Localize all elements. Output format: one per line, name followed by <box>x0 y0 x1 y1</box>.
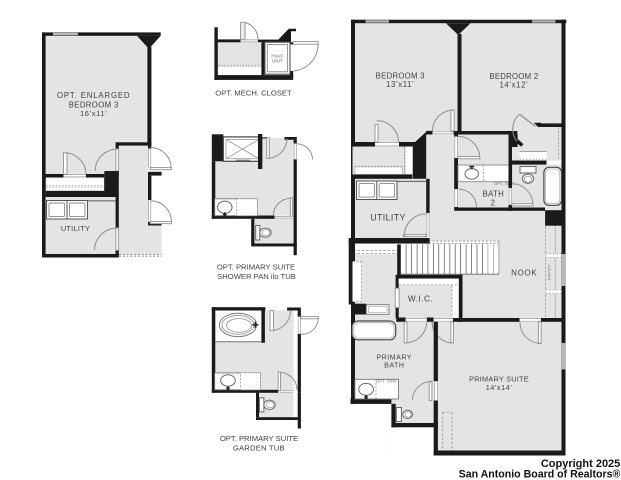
svg-text:BATH: BATH <box>483 190 504 199</box>
svg-text:OPT. ENLARGED: OPT. ENLARGED <box>57 91 130 100</box>
svg-text:PANTRY: PANTRY <box>548 264 552 280</box>
svg-text:OPT. MECH. CLOSET: OPT. MECH. CLOSET <box>215 88 292 97</box>
svg-text:UTILITY: UTILITY <box>61 224 90 233</box>
svg-text:14’x12’: 14’x12’ <box>499 80 528 89</box>
svg-text:W.I.C.: W.I.C. <box>408 295 433 304</box>
svg-text:San Antonio Board of Realtors®: San Antonio Board of Realtors® <box>459 468 621 480</box>
svg-text:UTILITY: UTILITY <box>370 213 406 223</box>
svg-text:GARDEN TUB: GARDEN TUB <box>233 443 285 452</box>
svg-text:BATH: BATH <box>384 362 404 369</box>
svg-text:SHOWER PAN ilo TUB: SHOWER PAN ilo TUB <box>217 272 296 281</box>
svg-text:UNIT: UNIT <box>272 59 283 64</box>
svg-text:OPT. SINK: OPT. SINK <box>376 379 397 384</box>
svg-text:NOOK: NOOK <box>511 269 537 278</box>
svg-text:PRIMARY: PRIMARY <box>376 355 412 362</box>
svg-text:2: 2 <box>491 199 496 208</box>
svg-text:13’x11’: 13’x11’ <box>386 80 414 89</box>
svg-text:OPT. PRIMARY SUITE: OPT. PRIMARY SUITE <box>220 434 298 443</box>
svg-text:14’x14’: 14’x14’ <box>486 383 513 392</box>
svg-text:16’x11’: 16’x11’ <box>80 109 107 118</box>
svg-text:OPT. PRIMARY SUITE: OPT. PRIMARY SUITE <box>217 262 295 271</box>
